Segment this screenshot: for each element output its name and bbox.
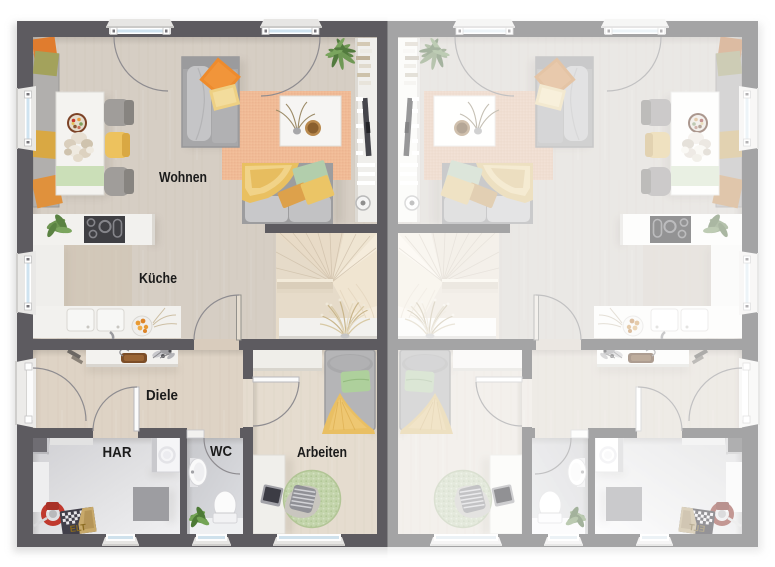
svg-text:Wohnen: Wohnen [159,169,207,186]
svg-text:Arbeiten: Arbeiten [297,444,347,461]
svg-text:Küche: Küche [139,270,177,287]
svg-text:HAR: HAR [103,444,132,461]
svg-text:WC: WC [210,443,232,460]
svg-text:Diele: Diele [146,387,178,404]
